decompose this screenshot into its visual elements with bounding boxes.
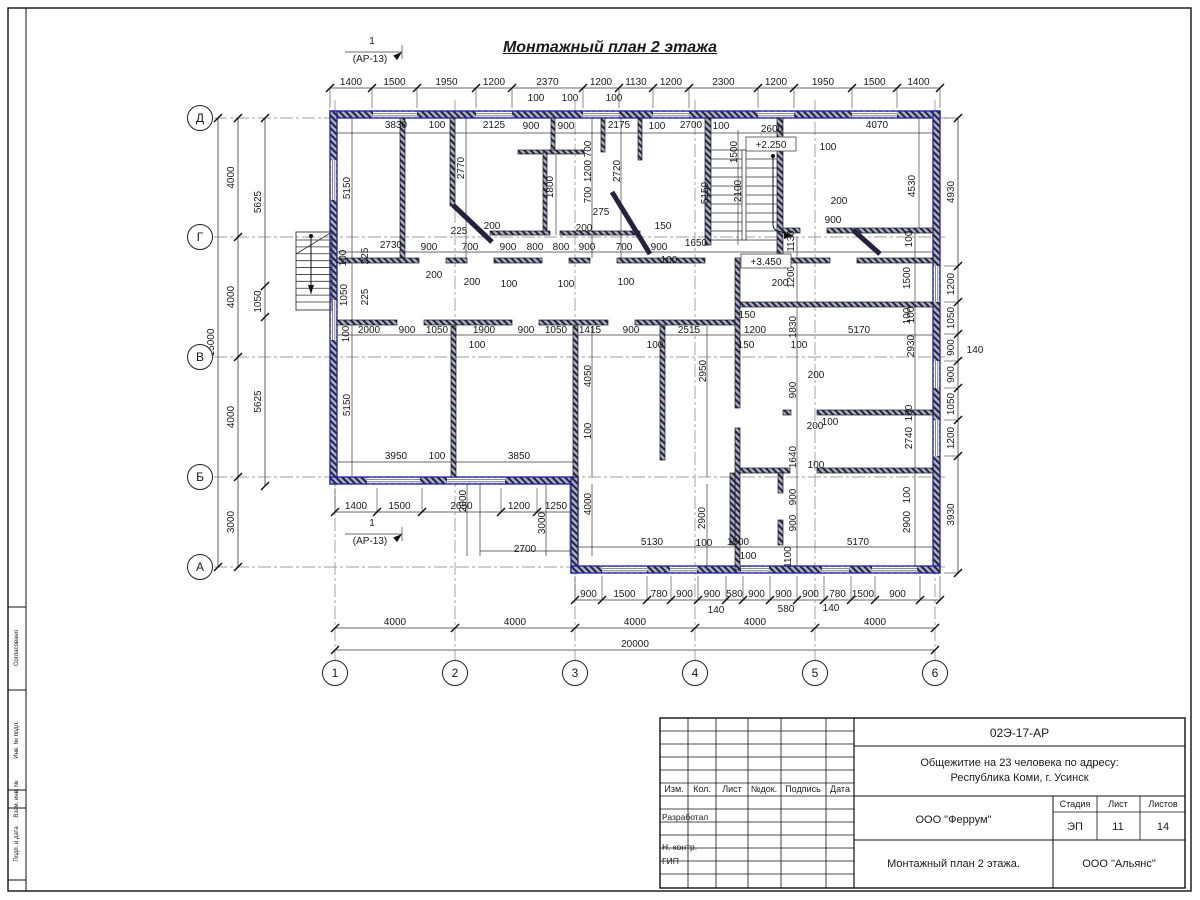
tb-stage: ЭП [1067, 821, 1083, 833]
dim-label: 5130 [641, 537, 664, 548]
dim-label: 4000 [744, 617, 767, 628]
dim-label: 200 [831, 196, 848, 207]
dim-label: 140 [708, 605, 725, 616]
dim-label: 900 [748, 589, 765, 600]
dim-label: 900 [676, 589, 693, 600]
dim-label: 100 [906, 306, 917, 323]
dim-label: 1050 [946, 392, 957, 415]
axis-bubble-label: В [196, 350, 204, 364]
dim-label: 100 [606, 93, 623, 104]
tb-sheet-title: Монтажный план 2 этажа. [887, 858, 1020, 870]
interior-wall [735, 258, 740, 408]
dim-label: 4000 [384, 617, 407, 628]
dim-label: 3830 [385, 120, 408, 131]
axis-bubble-label: 1 [332, 666, 339, 680]
dim-label: 2950 [698, 359, 709, 382]
dim-label: 4000 [583, 492, 594, 515]
dim-label: 900 [788, 381, 799, 398]
axis-bubble-label: 5 [812, 666, 819, 680]
dim-label: 2300 [712, 77, 735, 88]
dim-label: 900 [558, 121, 575, 132]
dim-label: 5150 [700, 181, 711, 204]
dim-label: 900 [399, 325, 416, 336]
diagonal-wall [853, 230, 880, 254]
dim-label: 100 [338, 249, 349, 266]
dim-label: 100 [583, 422, 594, 439]
dim-label: 100 [791, 340, 808, 351]
dim-label: 900 [579, 242, 596, 253]
dim-label: 4070 [866, 120, 889, 131]
side-stamp-label: Согласовано [14, 629, 20, 666]
dim-label: 1130 [786, 230, 797, 252]
tb-org2: ООО "Альянс" [1082, 858, 1156, 870]
dim-label: 2175 [608, 120, 631, 131]
dim-label: 5625 [253, 190, 264, 213]
dim-label: 2930 [906, 334, 917, 357]
dim-label: 1200 [483, 77, 506, 88]
interior-wall [638, 118, 642, 160]
interior-wall [827, 228, 933, 233]
tb-sheet: 11 [1112, 821, 1123, 833]
dim-label: 1500 [383, 77, 406, 88]
dim-label: 4050 [583, 364, 594, 387]
dim-label: 3850 [508, 451, 531, 462]
interior-wall [337, 258, 419, 263]
tb-stage-label: Стадия [1060, 799, 1091, 809]
dim-label: 1100 [783, 546, 794, 568]
dim-label: 900 [802, 589, 819, 600]
tb-col-header: Лист [722, 784, 742, 794]
dim-label: 200 [484, 221, 501, 232]
dim-label: 100 [647, 340, 664, 351]
dim-label: 100 [469, 340, 486, 351]
dim-label: 1250 [545, 501, 568, 512]
dim-label: 2720 [612, 159, 623, 182]
dim-label: 3950 [385, 451, 408, 462]
dim-label: 780 [651, 589, 668, 600]
dim-label: 800 [553, 242, 570, 253]
dim-label: 2700 [514, 544, 537, 555]
dim-label: 1 [369, 36, 375, 47]
dim-label: 100 [528, 93, 545, 104]
dim-label: 1900 [473, 325, 496, 336]
tb-org1: ООО "Феррум" [915, 814, 991, 826]
dim-label: 2370 [536, 77, 559, 88]
dim-label: 200 [464, 277, 481, 288]
dim-label: 3000 [226, 510, 237, 533]
dim-label: 1130 [625, 77, 647, 88]
dim-label: 100 [822, 417, 839, 428]
dim-label: 1200 [590, 77, 613, 88]
dim-label: 2900 [902, 510, 913, 533]
dim-label: 1050 [946, 306, 957, 329]
walls [330, 111, 940, 573]
dim-label: 100 [341, 325, 352, 342]
dim-label: 100 [661, 255, 678, 266]
dim-label: 4000 [226, 166, 237, 189]
exterior-wall [571, 477, 578, 573]
dim-label: 1500 [388, 501, 411, 512]
tb-project: Республика Коми, г. Усинск [950, 772, 1088, 784]
dim-label: 900 [946, 366, 957, 383]
dim-label: 2125 [483, 120, 506, 131]
dim-label: 100 [558, 279, 575, 290]
tb-col-header: Дата [830, 784, 850, 794]
dim-label: 100 [649, 121, 666, 132]
dim-label: 2000 [358, 325, 381, 336]
dim-label: 150 [738, 340, 755, 351]
dim-label: 4000 [226, 285, 237, 308]
dim-label: 1650 [685, 238, 708, 249]
dim-label: 5625 [253, 390, 264, 413]
dim-label: 200 [772, 278, 789, 289]
dim-label: 700 [462, 242, 479, 253]
dim-label: 900 [889, 589, 906, 600]
dim-label: 2770 [456, 156, 467, 179]
dim-label: 100 [820, 142, 837, 153]
level-mark: +3.450 [751, 257, 782, 268]
interior-wall [551, 118, 555, 152]
interior-wall [740, 302, 933, 307]
axis-bubble-label: 6 [932, 666, 939, 680]
interior-wall [783, 410, 791, 415]
title-block: Изм.Кол.Лист№док.ПодписьДатаРазработалН.… [660, 718, 1185, 888]
dim-label: 3000 [537, 511, 548, 534]
dim-label: 100 [501, 279, 518, 290]
plan-title: Монтажный план 2 этажа [450, 39, 770, 57]
exterior-wall [933, 111, 940, 573]
side-stamp-label: Подп. и дата [14, 826, 20, 862]
dim-label: 140 [967, 345, 984, 356]
dim-label: 900 [500, 242, 517, 253]
dim-label: 5150 [342, 393, 353, 416]
dim-label: 140 [823, 603, 840, 614]
dim-label: 580 [778, 604, 795, 615]
interior-wall [446, 258, 467, 263]
dim-label: (АР-13) [353, 54, 387, 65]
tb-col-header: Подпись [785, 784, 821, 794]
dim-label: 5150 [342, 176, 353, 199]
dim-label: 900 [421, 242, 438, 253]
tb-project: Общежитие на 23 человека по адресу: [920, 757, 1118, 769]
interior-wall [730, 473, 735, 545]
tb-sheet-label: Лист [1108, 799, 1128, 809]
dim-label: 900 [518, 325, 535, 336]
dim-label: 100 [696, 538, 713, 549]
dim-label: 20000 [621, 639, 649, 650]
dim-label: 900 [788, 514, 799, 531]
dim-label: 2900 [697, 506, 708, 529]
dim-label: 4000 [864, 617, 887, 628]
dim-label: 100 [808, 460, 825, 471]
dim-label: 4530 [907, 174, 918, 197]
tb-role: ГИП [662, 856, 679, 866]
dim-label: 1500 [613, 589, 636, 600]
dim-label: 900 [825, 215, 842, 226]
interior-wall [735, 428, 740, 570]
dim-label: 225 [360, 247, 371, 264]
dim-label: 100 [713, 121, 730, 132]
dim-label: 1200 [946, 426, 957, 449]
dim-label: 100 [562, 93, 579, 104]
interior-wall [494, 258, 542, 263]
drawing-sheet: Монтажный план 2 этажа СогласованоИнв. №… [0, 0, 1200, 900]
dim-label: 225 [451, 226, 468, 237]
dim-label: 800 [527, 242, 544, 253]
dim-label: 900 [704, 589, 721, 600]
dim-label: 5170 [847, 537, 870, 548]
axis-bubble-label: 2 [452, 666, 459, 680]
floor-plan-svg: СогласованоИнв. № подл.Взам. инв. №Подп.… [0, 0, 1200, 900]
dim-label: 1200 [765, 77, 788, 88]
dim-label: 1400 [907, 77, 930, 88]
dim-label: 1500 [727, 537, 750, 548]
dim-label: 900 [580, 589, 597, 600]
dim-label: 1500 [863, 77, 886, 88]
dim-label: 900 [523, 121, 540, 132]
dim-label: 900 [946, 339, 957, 356]
dim-label: 1500 [902, 266, 913, 289]
axis-bubble-label: Б [196, 470, 204, 484]
interior-wall [705, 118, 711, 245]
level-mark: +2.250 [756, 140, 787, 151]
dim-label: 100 [740, 551, 757, 562]
dim-label: 150 [655, 221, 672, 232]
dim-label: 1050 [426, 325, 449, 336]
dim-label: 700 [616, 242, 633, 253]
dim-label: 4930 [946, 180, 957, 203]
dim-label: 1640 [788, 445, 799, 468]
dim-label: 1950 [435, 77, 458, 88]
dim-label: 200 [426, 270, 443, 281]
dim-label: 780 [829, 589, 846, 600]
tb-col-header: №док. [751, 784, 777, 794]
dim-label: 1050 [339, 283, 350, 306]
dim-label: 1200 [583, 159, 594, 182]
dim-label: 2730 [380, 240, 403, 251]
dim-label: 100 [904, 230, 915, 247]
dim-label: 580 [726, 589, 743, 600]
dim-label: 100 [429, 451, 446, 462]
axis-grid [214, 100, 945, 660]
tb-doc-number: 02Э-17-АР [990, 726, 1049, 740]
axis-bubble-label: 4 [692, 666, 699, 680]
axis-bubble-label: 3 [572, 666, 579, 680]
dim-label: 1050 [545, 325, 568, 336]
tb-col-header: Изм. [664, 784, 683, 794]
dim-label: 3930 [946, 503, 957, 526]
dim-label: 700 [583, 140, 594, 157]
dim-label: 150 [739, 310, 756, 321]
interior-wall [450, 118, 455, 206]
interior-wall [817, 468, 933, 473]
dim-label: 5170 [848, 325, 871, 336]
dim-label: 2740 [904, 426, 915, 449]
tb-role: Разработал [662, 812, 708, 822]
dim-label: 4000 [504, 617, 527, 628]
dim-label: 900 [623, 325, 640, 336]
tb-col-header: Кол. [693, 784, 711, 794]
dim-label: 1830 [788, 315, 799, 338]
interior-wall [573, 326, 578, 477]
dim-label: 1415 [579, 325, 602, 336]
axis-bubble-label: А [196, 560, 204, 574]
side-stamp-label: Инв. № подл. [13, 721, 20, 759]
dim-label: 700 [583, 186, 594, 203]
dim-label: 1800 [545, 175, 556, 198]
dim-label: 1500 [729, 140, 740, 163]
interior-wall [601, 118, 605, 152]
dim-label: 100 [618, 277, 635, 288]
tb-role: Н. контр. [662, 842, 697, 852]
interior-wall [451, 326, 456, 477]
dim-label: 2600 [761, 124, 784, 135]
dim-label: 2100 [733, 179, 744, 202]
exterior-wall [330, 111, 940, 118]
dim-label: 2000 [458, 489, 469, 512]
dim-label: 2515 [678, 325, 701, 336]
dim-label: 1400 [345, 501, 368, 512]
dim-label: 900 [775, 589, 792, 600]
interior-wall [617, 258, 667, 263]
interior-wall [817, 410, 933, 415]
dim-label: 1500 [852, 589, 875, 600]
interior-wall [400, 118, 405, 258]
dim-label: 1200 [744, 325, 767, 336]
dim-label: 100 [429, 120, 446, 131]
dim-label: 1050 [253, 290, 264, 313]
dim-label: 200 [808, 370, 825, 381]
tb-sheets-label: Листов [1148, 799, 1177, 809]
interior-wall [518, 150, 584, 154]
dim-label: 275 [593, 207, 610, 218]
dim-label: 200 [576, 223, 593, 234]
axis-bubble-label: Д [196, 111, 204, 125]
dim-label: 100 [902, 486, 913, 503]
interior-wall [857, 258, 933, 263]
axis-bubble-label: Г [197, 230, 204, 244]
dim-label: 1200 [508, 501, 531, 512]
interior-wall [569, 258, 590, 263]
dim-label: 4000 [624, 617, 647, 628]
interior-wall [740, 468, 790, 473]
dim-label: 900 [651, 242, 668, 253]
dim-label: 100 [904, 404, 915, 421]
dim-label: 1200 [946, 272, 957, 295]
dim-label: 1 [369, 518, 375, 529]
interior-wall [560, 231, 640, 235]
dim-label: 225 [360, 288, 371, 305]
dim-label: 1950 [812, 77, 835, 88]
tb-sheets: 14 [1157, 821, 1169, 833]
interior-wall [778, 520, 783, 545]
dim-label: 1200 [660, 77, 683, 88]
dim-label: 4000 [226, 405, 237, 428]
dim-label: 900 [788, 488, 799, 505]
dim-label: 2700 [680, 120, 703, 131]
dim-label: (АР-13) [353, 536, 387, 547]
dim-label: 1400 [340, 77, 363, 88]
interior-wall [778, 473, 783, 493]
side-stamp-label: Взам. инв. № [13, 780, 20, 817]
